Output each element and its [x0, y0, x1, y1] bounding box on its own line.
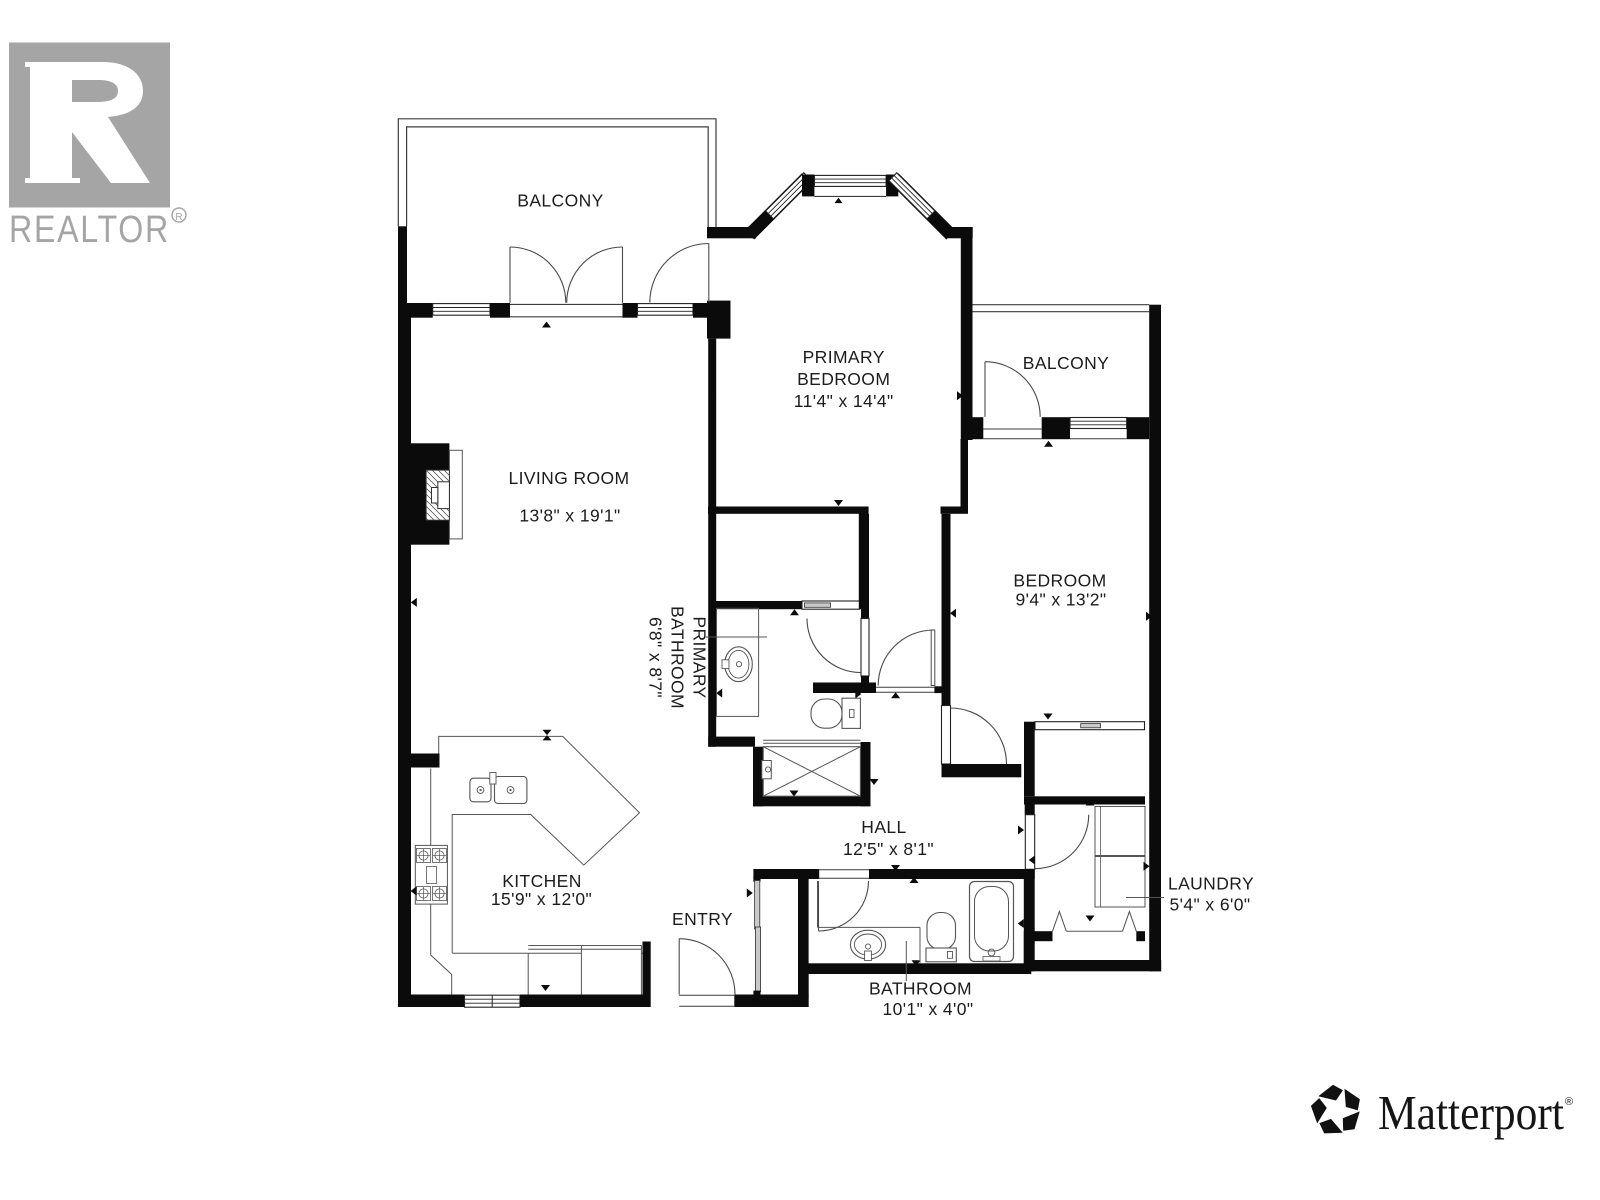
svg-text:15'9" x 12'0": 15'9" x 12'0" — [491, 889, 592, 909]
svg-text:PRIMARY: PRIMARY — [803, 347, 885, 367]
svg-text:KITCHEN: KITCHEN — [502, 871, 582, 891]
svg-text:13'8" x 19'1": 13'8" x 19'1" — [519, 506, 620, 526]
svg-text:5'4" x 6'0": 5'4" x 6'0" — [1170, 895, 1251, 915]
svg-text:BEDROOM: BEDROOM — [1013, 571, 1106, 591]
svg-text:9'4" x 13'2": 9'4" x 13'2" — [1015, 590, 1106, 610]
svg-text:LAUNDRY: LAUNDRY — [1168, 874, 1254, 894]
svg-text:R: R — [175, 212, 182, 223]
svg-text:BALCONY: BALCONY — [1023, 353, 1109, 373]
svg-text:ENTRY: ENTRY — [672, 909, 733, 929]
svg-text:HALL: HALL — [861, 817, 906, 837]
svg-text:REALTOR: REALTOR — [9, 209, 170, 251]
svg-text:Matterport: Matterport — [1378, 1085, 1564, 1140]
svg-text:12'5" x 8'1": 12'5" x 8'1" — [843, 839, 934, 859]
svg-text:BATHROOM: BATHROOM — [869, 979, 972, 999]
svg-text:®: ® — [1565, 1096, 1573, 1108]
svg-text:BALCONY: BALCONY — [517, 191, 603, 211]
svg-text:6'8" x 8'7": 6'8" x 8'7" — [646, 617, 666, 698]
svg-text:LIVING ROOM: LIVING ROOM — [508, 468, 629, 488]
svg-text:11'4" x 14'4": 11'4" x 14'4" — [794, 391, 894, 411]
svg-text:BEDROOM: BEDROOM — [797, 369, 890, 389]
svg-text:BATHROOM: BATHROOM — [668, 606, 688, 709]
svg-text:PRIMARY: PRIMARY — [690, 616, 710, 698]
svg-text:10'1" x 4'0": 10'1" x 4'0" — [882, 999, 973, 1019]
